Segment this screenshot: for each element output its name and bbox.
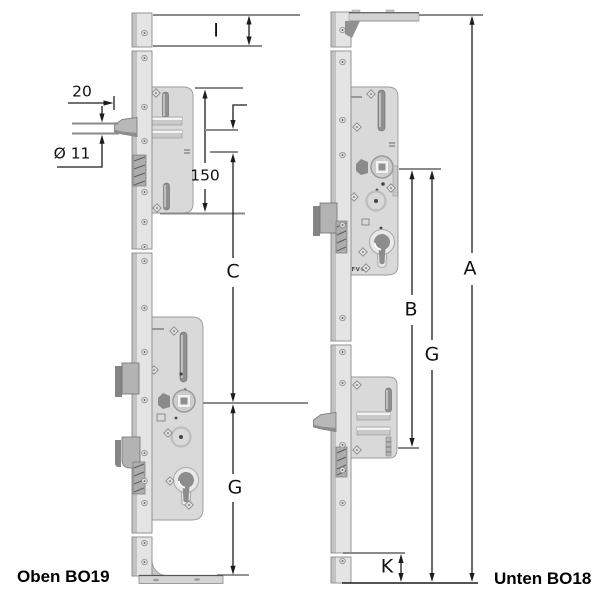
dim-label-dia11: Ø 11 — [54, 145, 91, 163]
dim-label-K: K — [381, 556, 394, 578]
hatched-strip — [133, 155, 146, 186]
screw-slot — [163, 92, 169, 118]
left-upper-lock-case — [147, 87, 193, 213]
dim-label-B: B — [404, 299, 417, 321]
follower-hub — [173, 390, 195, 412]
screw-slot — [386, 388, 392, 412]
hatched-strip — [133, 462, 145, 494]
dim-label-G-right: G — [425, 344, 440, 366]
dim-label-G-left: G — [228, 477, 243, 499]
follower-hub — [371, 156, 393, 178]
lock-dimension-diagram: KFV® — [0, 0, 600, 600]
right-faceplate-rail — [331, 12, 351, 583]
diagram-canvas: KFV® — [0, 0, 600, 600]
caption-left: Oben BO19 — [17, 567, 110, 586]
deadbolt-rectangular — [115, 363, 139, 397]
dim-label-C: C — [226, 261, 239, 283]
caption-right: Unten BO18 — [494, 569, 591, 588]
screw-slot — [378, 90, 385, 131]
deadbolt-rectangular — [313, 203, 337, 236]
dim-label-A: A — [464, 258, 477, 280]
right-lower-lock-case — [346, 377, 397, 458]
screw-slot — [164, 183, 170, 210]
right-main-lock-case: KFV® — [346, 87, 398, 275]
dim-label-20: 20 — [72, 83, 92, 101]
dim-label-150: 150 — [190, 167, 220, 185]
dim-label-I: I — [213, 20, 219, 42]
